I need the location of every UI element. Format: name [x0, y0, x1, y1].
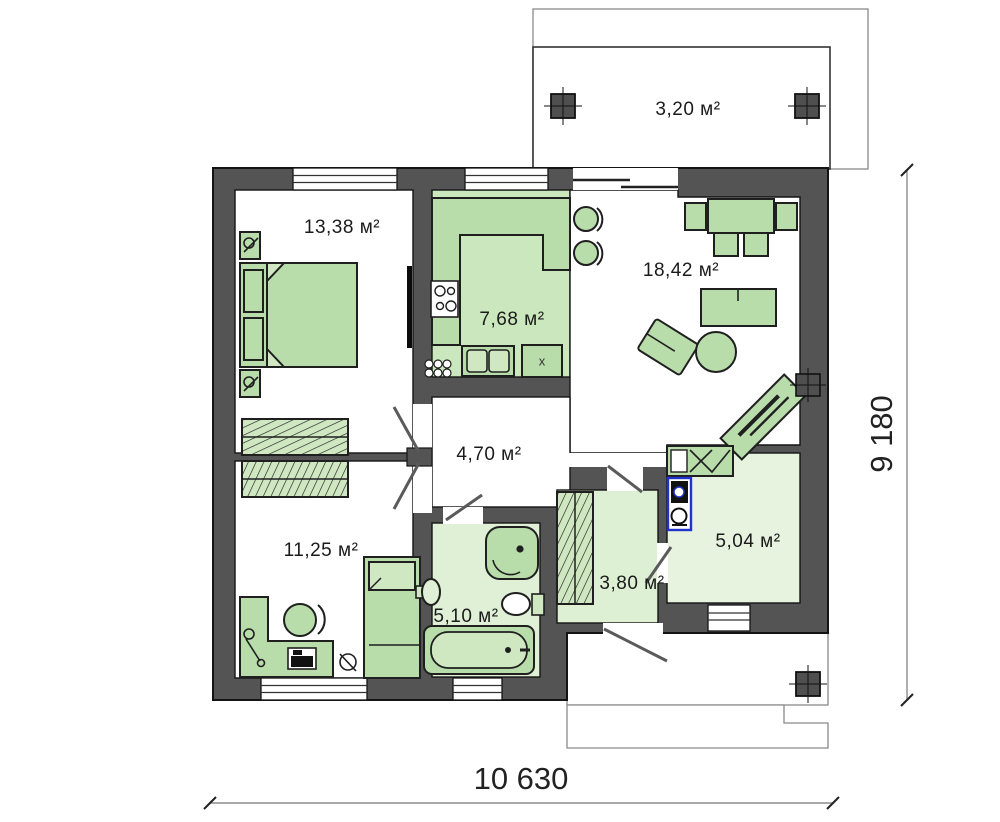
shower	[486, 527, 538, 579]
area-label-bedroom-2: 11,25 м²	[284, 540, 359, 562]
vanity-sink	[667, 446, 733, 476]
terrace-sliding-door	[573, 168, 678, 190]
window-bathroom	[453, 678, 502, 700]
window-bedroom-1	[293, 168, 397, 190]
coffee-table	[696, 332, 736, 372]
dimension-height-label: 9 180	[864, 395, 900, 473]
area-label-hallway: 4,70 м²	[456, 444, 521, 466]
dishwasher-marker: x	[539, 354, 546, 369]
window-kitchen	[465, 168, 548, 190]
area-label-bedroom-1: 13,38 м²	[304, 217, 380, 239]
sofa	[701, 289, 776, 326]
dimension-width-label: 10 630	[474, 761, 569, 797]
wardrobe	[242, 461, 348, 497]
stove	[431, 281, 458, 317]
entry-porch	[567, 633, 828, 748]
dining-chair	[744, 233, 768, 256]
floor-plan: 3,20 м² 13,38 м² 7,68 м² 18,42 м² 4,70 м…	[0, 0, 1000, 822]
window-bedroom-2	[261, 678, 367, 700]
furniture-wardrobe-hall	[557, 492, 593, 604]
area-label-living-room: 18,42 м²	[643, 260, 719, 282]
wardrobe	[242, 419, 348, 455]
nightstand	[240, 370, 260, 397]
area-label-bathroom-2: 5,04 м²	[715, 531, 780, 553]
dining-chair	[714, 233, 738, 256]
dining-chair	[776, 203, 797, 230]
computer	[288, 648, 316, 669]
window-bathroom-2	[708, 605, 750, 631]
area-label-terrace: 3,20 м²	[655, 99, 720, 121]
washing-machine	[668, 478, 691, 530]
bathtub	[424, 626, 534, 674]
hall-wardrobe	[557, 492, 593, 604]
kitchen-sink	[462, 346, 514, 376]
area-label-bathroom: 5,10 м²	[433, 606, 498, 628]
tv	[407, 266, 412, 348]
area-label-kitchen: 7,68 м²	[479, 309, 544, 331]
terrace	[533, 9, 868, 169]
radiator	[425, 360, 451, 377]
dining-chair	[685, 203, 706, 230]
dining-table	[708, 199, 774, 233]
toilet	[502, 593, 544, 615]
single-bed	[364, 557, 420, 678]
double-bed	[240, 263, 357, 367]
floor-plan-drawing	[0, 0, 1000, 822]
area-label-wardrobe-hall: 3,80 м²	[599, 573, 664, 595]
